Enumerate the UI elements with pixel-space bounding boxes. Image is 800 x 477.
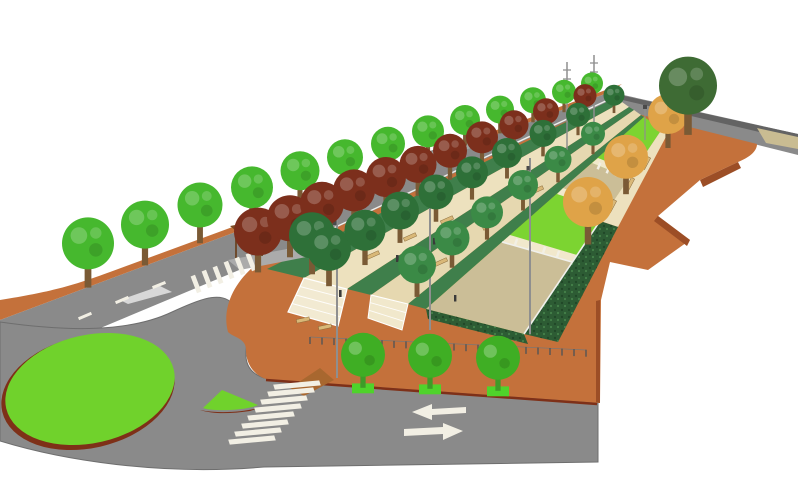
park-render-svg [0, 0, 800, 477]
plaza-tree-row [341, 333, 520, 397]
render-canvas [0, 0, 800, 477]
